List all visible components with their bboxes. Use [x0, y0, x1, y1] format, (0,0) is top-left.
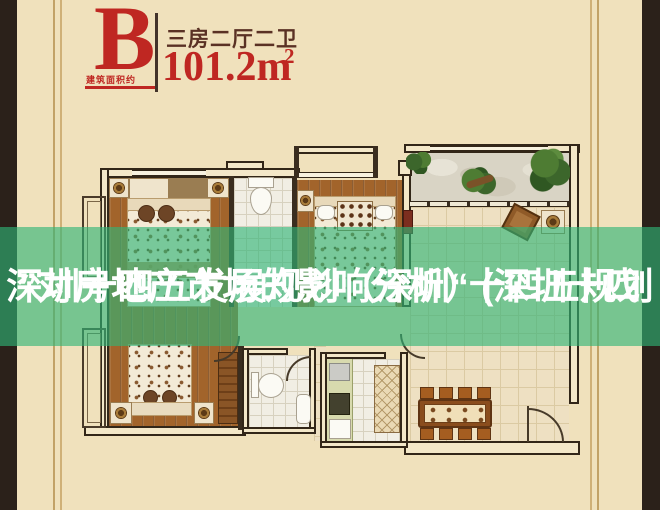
dining-chair	[420, 387, 434, 399]
bay-window-2-sill	[299, 172, 373, 178]
pillow	[317, 205, 335, 220]
wall-vent-stub	[226, 161, 264, 170]
dining-chair	[458, 387, 472, 399]
dining-chair	[420, 428, 434, 440]
lamp-icon	[113, 182, 125, 194]
wall-bottom-entry	[404, 441, 580, 455]
pillow	[138, 205, 155, 222]
dresser	[129, 178, 207, 200]
bay-window-3-inner	[87, 333, 101, 423]
entry-door-leaf	[527, 406, 529, 442]
plant-icon	[406, 152, 432, 174]
dining-chair	[458, 428, 472, 440]
bed-3-headboard	[128, 402, 192, 416]
toilet-icon	[258, 373, 284, 398]
dining-chair	[477, 387, 491, 399]
bay-window-2-top	[294, 146, 378, 154]
wall-bottom-bedroom3	[84, 426, 246, 436]
wardrobe	[218, 352, 238, 424]
dining-chair	[477, 428, 491, 440]
dining-chair	[439, 428, 453, 440]
kitchen-wall-bottom	[320, 441, 408, 448]
balcony-window-sill	[410, 201, 569, 207]
pillow	[375, 205, 393, 220]
bed-3	[128, 344, 192, 404]
title-overlay: 深圳十四五发展规划（深圳“十四五规划 ”对房地产市场的影响分析）(深圳十四	[0, 227, 660, 346]
poster-canvas: B 建筑面积约 三房二厅二卫 101.2m 2	[0, 0, 660, 510]
lamp-icon	[212, 182, 224, 194]
lamp-icon	[115, 407, 127, 419]
stove	[329, 393, 350, 415]
kitchen-wall-right	[400, 352, 408, 448]
pillow	[158, 205, 175, 222]
dining-chair	[439, 387, 453, 399]
kitchen-wall-left	[320, 352, 327, 448]
bathroom-2-wall-left	[242, 348, 249, 434]
kitchen-sink	[329, 363, 350, 381]
overlay-title-line2: ”对房地产市场的影响分析）(深圳十四	[19, 262, 642, 312]
bathroom-2-wall-bottom	[242, 427, 316, 434]
dining-table-top	[424, 404, 486, 423]
bathroom-sink	[296, 394, 311, 424]
lamp-icon	[198, 407, 210, 419]
bedroom-1-window	[132, 170, 206, 176]
fridge	[329, 419, 351, 439]
bay-window-2-right	[373, 146, 378, 178]
plant-icon	[528, 148, 570, 192]
lamp-icon	[300, 195, 311, 206]
kitchen-wall-top	[320, 352, 386, 359]
pantry-cabinet	[374, 365, 400, 433]
